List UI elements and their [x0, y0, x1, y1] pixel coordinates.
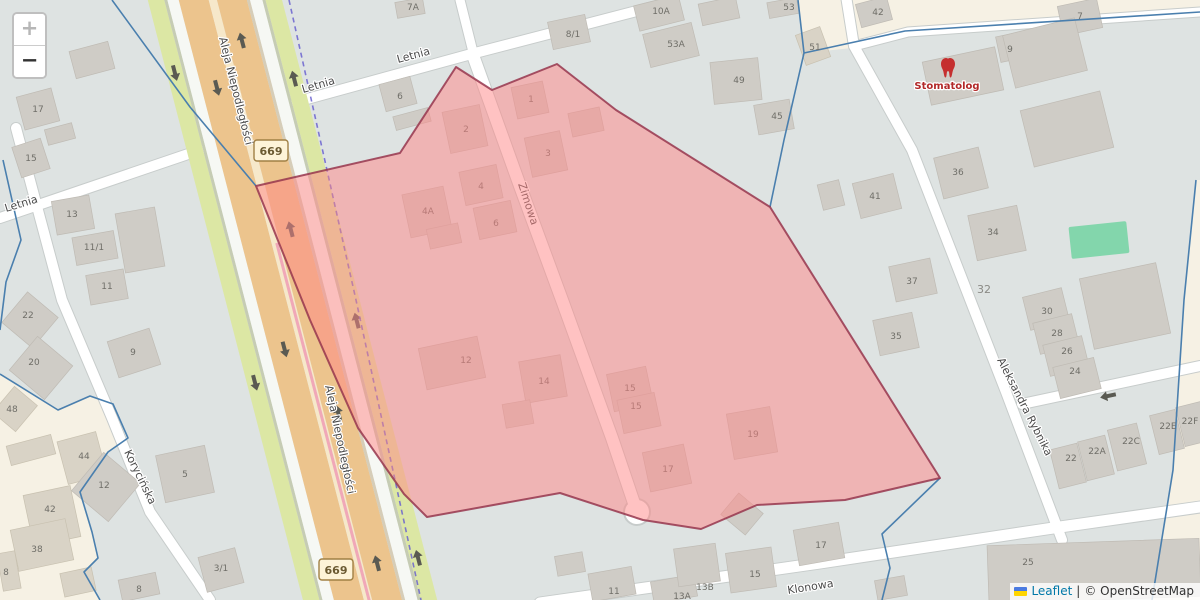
house-number-label: 22C	[1122, 437, 1140, 447]
house-number-label: 45	[771, 112, 782, 122]
road-shield-669: 669	[319, 559, 353, 580]
house-number-label: 12	[98, 481, 109, 491]
house-number-label: 37	[906, 277, 917, 287]
house-number-label: 17	[32, 105, 43, 115]
zoom-control: + −	[12, 12, 47, 79]
house-number-label: 25	[1022, 558, 1033, 568]
building	[1079, 263, 1170, 350]
park-area	[1068, 221, 1129, 259]
house-number-label: 22	[22, 311, 33, 321]
house-number-label: 11	[101, 282, 112, 292]
house-number-label: 34	[987, 228, 999, 238]
poi-label: Stomatolog	[914, 81, 979, 92]
house-number-label: 7A	[407, 3, 420, 13]
road-shield-number: 669	[260, 145, 283, 158]
house-number-label: 6	[397, 92, 403, 102]
house-number-label: 42	[44, 505, 55, 515]
house-number-label: 22	[1065, 454, 1076, 464]
map-canvas[interactable]: 17 15 13 11/1 11 22 20 9 48 44 12 5 3/1 …	[0, 0, 1200, 600]
building	[674, 543, 721, 586]
house-number-label: 13B	[696, 583, 714, 593]
house-number-label: 22F	[1182, 417, 1199, 427]
house-number-label: 15	[749, 570, 760, 580]
house-number-label: 5	[182, 470, 188, 480]
house-number-label: 42	[872, 8, 883, 18]
house-number-label: 17	[815, 541, 826, 551]
house-number-label: 15	[25, 154, 36, 164]
road-shield-669: 669	[254, 140, 288, 161]
house-number-label: 44	[78, 452, 90, 462]
ukraine-flag-icon	[1014, 587, 1027, 596]
zoom-in-button[interactable]: +	[14, 14, 45, 46]
map-application: 17 15 13 11/1 11 22 20 9 48 44 12 5 3/1 …	[0, 0, 1200, 600]
house-number-label: 51	[809, 43, 820, 53]
house-number-label: 7	[1077, 12, 1083, 22]
house-number-label: 22A	[1088, 447, 1106, 457]
house-number-label: 24	[1069, 367, 1081, 377]
house-number-label: 36	[952, 168, 964, 178]
house-number-label: 11/1	[84, 243, 104, 253]
house-number-label: 9	[130, 348, 136, 358]
house-number-label: 53A	[667, 40, 685, 50]
house-number-label: 3/1	[214, 564, 228, 574]
house-number-label: 8/1	[566, 30, 580, 40]
road-shield-number: 669	[325, 564, 348, 577]
attribution-bar: Leaflet | © OpenStreetMap	[1010, 583, 1200, 600]
house-number-label: 38	[31, 545, 43, 555]
house-number-label: 28	[1051, 329, 1063, 339]
house-number-label: 35	[890, 332, 901, 342]
zoom-out-button[interactable]: −	[14, 46, 45, 77]
house-number-label: 11	[608, 587, 619, 597]
house-number-label: 10A	[652, 7, 670, 17]
house-number-label: 26	[1061, 347, 1073, 357]
house-number-label: 8	[136, 585, 142, 595]
house-number-label: 13	[66, 210, 77, 220]
house-number-label: 49	[733, 76, 745, 86]
house-number-label: 9	[1007, 45, 1013, 55]
house-number-label: 20	[28, 358, 40, 368]
openstreetmap-link[interactable]: © OpenStreetMap	[1084, 584, 1194, 598]
house-number-label: 53	[783, 3, 794, 13]
house-number-label: 30	[1041, 307, 1053, 317]
leaflet-link[interactable]: Leaflet	[1031, 584, 1072, 598]
house-number-label: 8	[3, 568, 9, 578]
house-number-label: 22E	[1159, 422, 1176, 432]
house-number-label: 41	[869, 192, 880, 202]
house-number-label: 13A	[673, 592, 691, 600]
house-number-label: 48	[6, 405, 18, 415]
attribution-separator: |	[1076, 584, 1080, 598]
block-number-label: 32	[977, 283, 991, 296]
